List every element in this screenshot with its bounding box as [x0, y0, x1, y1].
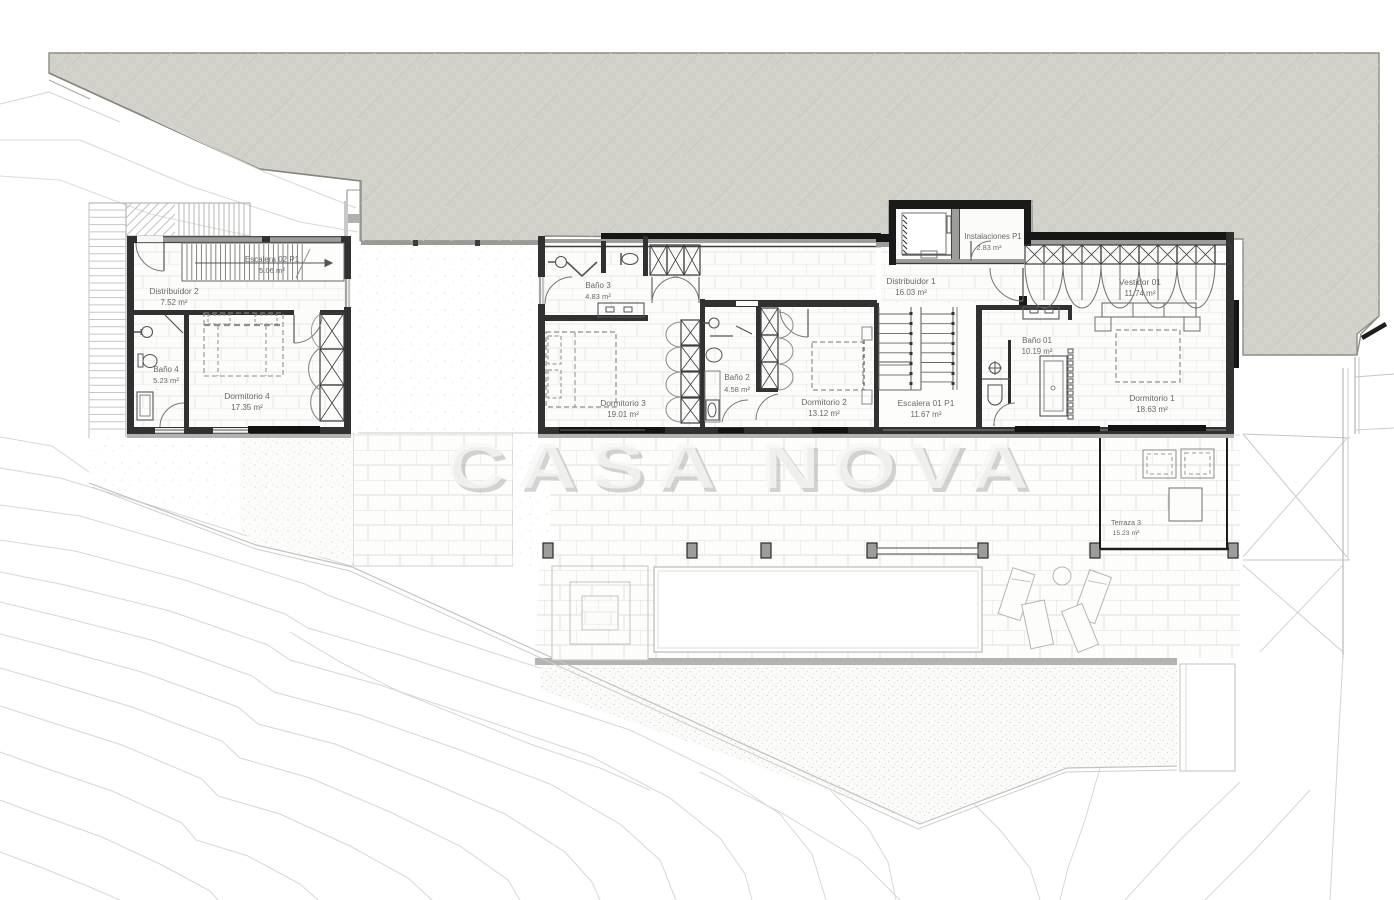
- svg-text:15.23 m²: 15.23 m²: [1113, 530, 1141, 537]
- svg-text:Baño 3: Baño 3: [585, 281, 611, 290]
- svg-text:10.19 m²: 10.19 m²: [1022, 347, 1053, 356]
- svg-text:Terraza 3: Terraza 3: [1111, 518, 1141, 527]
- svg-text:4.83 m²: 4.83 m²: [585, 292, 611, 301]
- svg-text:Distribuidor 2: Distribuidor 2: [149, 286, 199, 296]
- svg-text:Dormitorio 2: Dormitorio 2: [801, 397, 847, 407]
- svg-text:11.74 m²: 11.74 m²: [1125, 289, 1156, 298]
- svg-text:13.12 m²: 13.12 m²: [808, 409, 840, 418]
- svg-text:7.52 m²: 7.52 m²: [160, 298, 187, 307]
- svg-text:5.06 m²: 5.06 m²: [259, 266, 285, 275]
- svg-text:Vestidor 01: Vestidor 01: [1119, 277, 1161, 287]
- svg-text:CASA NOVA: CASA NOVA: [446, 430, 1041, 502]
- svg-text:Baño 01: Baño 01: [1022, 336, 1052, 345]
- svg-text:18.63 m²: 18.63 m²: [1136, 405, 1168, 414]
- svg-text:Distribuidor 1: Distribuidor 1: [886, 276, 936, 286]
- svg-text:Instalaciones P1: Instalaciones P1: [964, 232, 1021, 241]
- svg-text:2.83 m²: 2.83 m²: [976, 243, 1002, 252]
- svg-text:Escalera 02 P1: Escalera 02 P1: [245, 255, 300, 264]
- svg-text:Dormitorio 4: Dormitorio 4: [224, 391, 270, 401]
- svg-text:17.35 m²: 17.35 m²: [231, 403, 263, 412]
- svg-text:Dormitorio 3: Dormitorio 3: [600, 398, 646, 408]
- svg-text:11.67 m²: 11.67 m²: [911, 410, 942, 419]
- svg-text:5.23 m²: 5.23 m²: [153, 376, 179, 385]
- svg-text:Escalera 01 P1: Escalera 01 P1: [898, 398, 955, 408]
- svg-text:Baño 4: Baño 4: [153, 365, 179, 374]
- svg-text:Baño 2: Baño 2: [724, 373, 750, 382]
- svg-text:19.01 m²: 19.01 m²: [607, 410, 639, 419]
- svg-text:16.03 m²: 16.03 m²: [895, 288, 927, 297]
- svg-text:4.58 m²: 4.58 m²: [724, 385, 750, 394]
- svg-text:Dormitorio 1: Dormitorio 1: [1129, 393, 1175, 403]
